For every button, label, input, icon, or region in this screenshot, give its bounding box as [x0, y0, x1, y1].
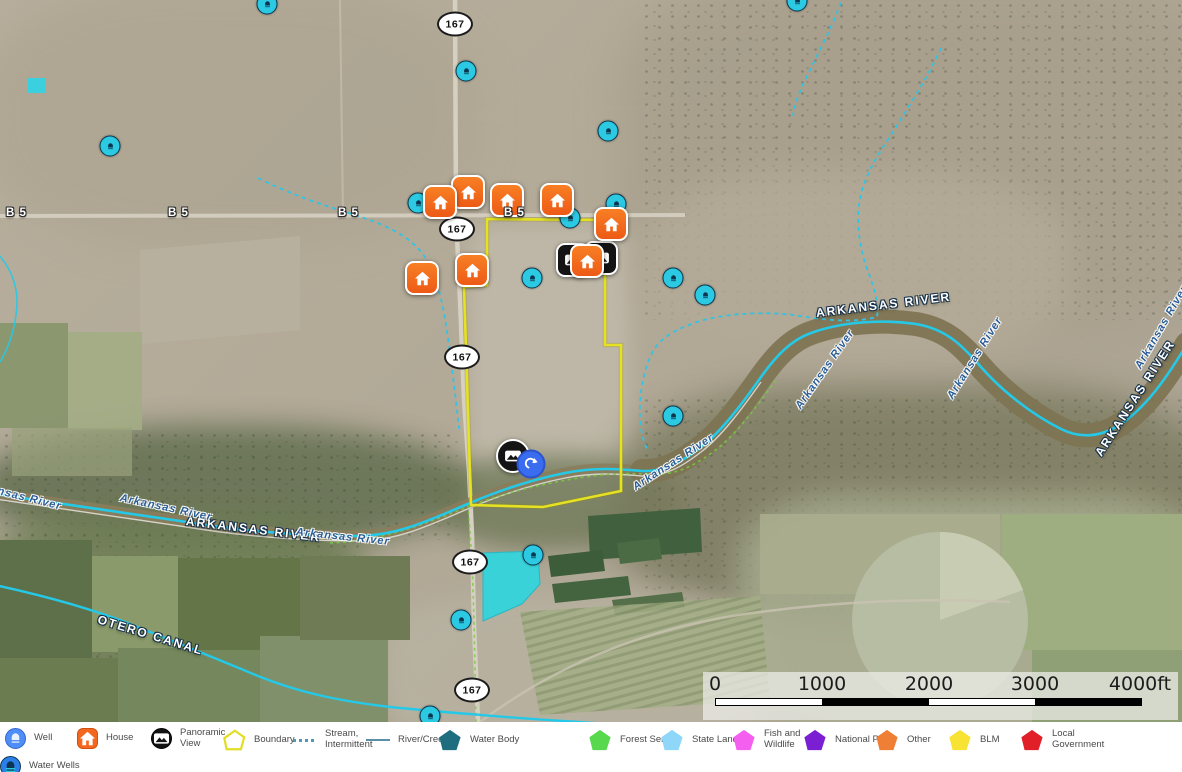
house-marker[interactable] [570, 244, 604, 278]
well-icon [1, 757, 20, 772]
well-marker[interactable] [695, 285, 716, 306]
house-icon [548, 191, 567, 210]
scale-tick-label: 1000 [798, 673, 846, 695]
map-canvas[interactable]: 167167167167167B 5B 5B 5B 5ARKANSAS RIVE… [0, 0, 1182, 722]
pentagon-swatch [588, 728, 612, 752]
boundary-swatch [222, 728, 246, 752]
well-icon [699, 289, 711, 301]
house-marker[interactable] [455, 253, 489, 287]
well-icon [602, 125, 614, 137]
well-icon [460, 65, 472, 77]
map-legend: WellHousePanoramic ViewBoundaryStream, I… [0, 722, 1182, 772]
river-line-icon [366, 728, 390, 752]
well-icon [455, 614, 467, 626]
house-marker[interactable] [594, 207, 628, 241]
pentagon-swatch [660, 728, 684, 752]
well-icon [261, 0, 273, 10]
well-icon [6, 729, 25, 748]
legend-label: Local Government [1052, 729, 1110, 751]
legend-item-water-wells: Water Wells [0, 756, 87, 772]
well-marker[interactable] [663, 268, 684, 289]
highway-shield: 167 [452, 550, 488, 575]
well-marker[interactable] [598, 121, 619, 142]
well-icon [424, 710, 436, 722]
pentagon-swatch [1020, 728, 1044, 752]
house-icon [498, 191, 517, 210]
scale-tick-label: 2000 [905, 673, 953, 695]
well-marker[interactable] [451, 610, 472, 631]
house-marker[interactable] [423, 185, 457, 219]
house-icon [602, 215, 621, 234]
stream-line-icon [293, 728, 317, 752]
well-icon [667, 272, 679, 284]
scale-bar-segments [715, 698, 1142, 706]
house-icon [431, 193, 450, 212]
house-icon [77, 728, 98, 749]
scale-tick-label: 0 [709, 673, 721, 695]
pentagon-swatch [438, 728, 462, 752]
well-marker[interactable] [420, 706, 441, 723]
rotate-arrow-icon [523, 456, 540, 473]
well-icon [791, 0, 803, 7]
highway-shield: 167 [444, 345, 480, 370]
legend-label: Water Body [470, 735, 528, 746]
well-icon [526, 272, 538, 284]
well-icon [667, 410, 679, 422]
legend-item-water-body: Water Body [438, 728, 528, 752]
highway-shield: 167 [437, 12, 473, 37]
well-icon [104, 140, 116, 152]
house-marker[interactable] [540, 183, 574, 217]
well-marker[interactable] [100, 136, 121, 157]
house-marker[interactable] [490, 183, 524, 217]
scale-bar: 0 1000 2000 3000 4000ft [703, 672, 1178, 720]
well-icon [527, 549, 539, 561]
street-view-marker[interactable] [517, 450, 546, 479]
highway-shield: 167 [454, 678, 490, 703]
well-marker[interactable] [522, 268, 543, 289]
house-marker[interactable] [405, 261, 439, 295]
map-application: 167167167167167B 5B 5B 5B 5ARKANSAS RIVE… [0, 0, 1182, 772]
panoramic-view-icon [151, 728, 172, 749]
pentagon-swatch [875, 728, 899, 752]
legend-label: Water Wells [29, 761, 87, 772]
pentagon-swatch [803, 728, 827, 752]
well-marker[interactable] [456, 61, 477, 82]
water-well-icon [0, 756, 21, 772]
pentagon-swatch [732, 728, 756, 752]
house-icon [413, 269, 432, 288]
well-icon [5, 728, 26, 749]
house-icon [459, 183, 478, 202]
photo-icon [152, 729, 171, 748]
well-marker[interactable] [663, 406, 684, 427]
scale-tick-label: 4000ft [1109, 673, 1171, 695]
map-lines-layer [0, 0, 1182, 722]
house-icon [78, 729, 97, 748]
scale-tick-label: 3000 [1011, 673, 1059, 695]
legend-item-local-government: Local Government [1020, 728, 1110, 752]
house-icon [578, 252, 597, 271]
pentagon-swatch [948, 728, 972, 752]
highway-shield: 167 [439, 217, 475, 242]
house-icon [463, 261, 482, 280]
well-marker[interactable] [523, 545, 544, 566]
